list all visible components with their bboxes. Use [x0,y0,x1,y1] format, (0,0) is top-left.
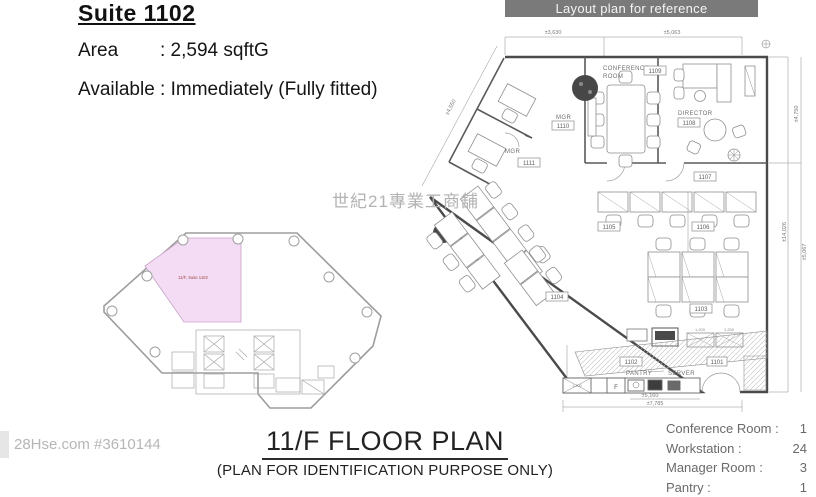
zone-1110-text: 1110 [557,124,570,130]
mgr1-label: MGR [556,115,571,121]
pantry-counter [563,378,700,393]
watermark-bar [0,431,9,458]
legend-label: Manager Room : [666,458,763,478]
room-count-legend: Conference Room : 1 Workstation : 24 Man… [666,419,807,497]
zone-1107-text: 1107 [699,175,713,181]
area-label: Area [78,40,160,62]
zone-1103-text: 1103 [695,307,709,313]
dim-right-full: ±14,026 [782,222,788,242]
conference-label-2: ROOM [603,74,623,80]
fridge-label: F [614,385,618,391]
zone-1101-text: 1101 [711,360,725,366]
legend-row-workstation: Workstation : 24 [666,439,807,459]
legend-label: Conference Room : [666,419,779,439]
zone-1105-text: 1105 [603,225,617,231]
area-value: : 2,594 sqftG [160,40,269,62]
legend-row-manager: Manager Room : 3 [666,458,807,478]
zone-1102-text: 1102 [625,360,639,366]
listing-header: Suite 1102 Area : 2,594 sqftG Available … [78,0,378,101]
availability-row: Available : Immediately (Fully fitted) [78,79,378,101]
dim-top-left: ±3,630 [545,30,562,36]
dim-diagonal: ±4,550 [445,99,458,117]
legend-row-pantry: Pantry : 1 [666,478,807,497]
legend-row-conference: Conference Room : 1 [666,419,807,439]
legend-value: 1 [800,478,807,497]
dim-bottom-outer: ±7,785 [647,401,664,407]
dim-right-upper: ±4,750 [794,106,800,123]
plant-texture [579,82,583,86]
legend-value: 24 [793,439,807,459]
zone-1106-text: 1106 [697,225,711,231]
plant-texture [588,90,592,94]
director-label: DIRECTOR [678,111,713,117]
building-outline [104,233,381,408]
plant-icon [572,75,598,101]
zone-1111-text: 1111 [523,161,536,167]
listing-page: { "listing": { "title": "Suite 1102", "a… [0,0,816,480]
agency-watermark: 世紀21專業工商舖 [332,187,479,212]
availability-text: Available : Immediately (Fully fitted) [78,79,378,101]
pantry-label: PANTRY [626,371,652,377]
cabinet-dim-b: 1,200 [724,327,735,332]
conference-room [588,71,660,167]
equipment-box [627,329,647,341]
area-row: Area : 2,594 sqftG [78,40,378,62]
lift-lobby-hatch [744,356,766,390]
suite-title: Suite 1102 [78,0,378,27]
dim-bottom-inner: ±5,160 [642,393,659,399]
mgr2-label: MGR [505,149,520,155]
key-plan: 11/F, Suite 1102 [95,222,391,418]
conference-label-1: CONFERENCE [603,66,649,72]
listing-id-watermark: 28Hse.com #3610144 [14,436,161,453]
legend-value: 3 [800,458,807,478]
floor-plan-subtitle: (PLAN FOR IDENTIFICATION PURPOSE ONLY) [175,462,595,479]
floor-plan-title: 11/F FLOOR PLAN [262,426,508,460]
server-label: SERVER [668,371,695,377]
counter-dim: 1,200 [572,384,582,388]
zone-1104-text: 1104 [551,295,565,301]
zone-1109-text: 1109 [649,69,663,75]
legend-label: Pantry : [666,478,711,497]
legend-label: Workstation : [666,439,742,459]
suite-highlight-label: 11/F, Suite 1102 [178,275,208,280]
cabinet-dim-a: 1,200 [695,327,706,332]
dim-right-lower: ±5,067 [802,244,808,261]
legend-value: 1 [800,419,807,439]
dim-top-right: ±5,063 [664,30,681,36]
zone-1108-text: 1108 [683,121,697,127]
plan-caption: 11/F FLOOR PLAN (PLAN FOR IDENTIFICATION… [175,426,595,479]
floor-plan-drawing: ±3,630 ±5,063 ±4,550 ±4,750 ±14,026 ±5,0… [412,15,816,430]
